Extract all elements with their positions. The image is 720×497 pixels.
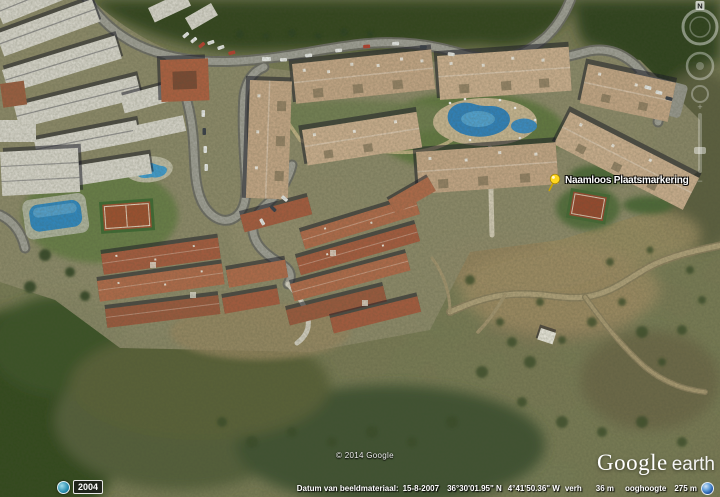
elevation-value: 36 m (596, 484, 614, 493)
logo-google-word: Google (597, 450, 668, 476)
google-earth-window: Naamloos Plaatsmarkering N + − 2004 © 20… (0, 0, 720, 497)
move-joystick[interactable] (692, 86, 708, 102)
google-earth-logo: Google earth (597, 450, 715, 476)
eye-altitude-label: ooghoogte (625, 484, 666, 493)
look-joystick[interactable] (687, 53, 713, 79)
placemark-naamloos[interactable]: Naamloos Plaatsmarkering (545, 172, 689, 194)
eye-altitude-value: 275 m (674, 484, 697, 493)
logo-earth-word: earth (672, 454, 715, 476)
elevation-label: verh (565, 484, 582, 493)
navigation-controls[interactable]: N + − (678, 0, 720, 192)
placemark-label: Naamloos Plaatsmarkering (565, 175, 689, 186)
latitude-value: 36°30'01.95" N (447, 484, 502, 493)
zoom-in-label[interactable]: + (697, 102, 702, 112)
imagery-date-value: 15-8-2007 (403, 484, 439, 493)
satellite-map[interactable] (0, 0, 720, 497)
copyright-notice: © 2014 Google (336, 451, 394, 460)
image-grain (0, 0, 720, 497)
zoom-out-label[interactable]: − (697, 176, 702, 186)
pushpin-icon (545, 172, 563, 194)
zoom-slider[interactable]: + − (694, 102, 706, 186)
compass-ring[interactable]: N (683, 1, 717, 44)
streaming-indicator-icon (701, 482, 714, 495)
zoom-slider-knob[interactable] (694, 147, 706, 154)
longitude-value: 4°41'50.36" W (508, 484, 560, 493)
status-bar: Datum van beeldmateriaal: 15-8-2007 36°3… (0, 482, 720, 495)
imagery-date-label: Datum van beeldmateriaal: (297, 484, 399, 493)
compass-north-label: N (697, 2, 702, 11)
